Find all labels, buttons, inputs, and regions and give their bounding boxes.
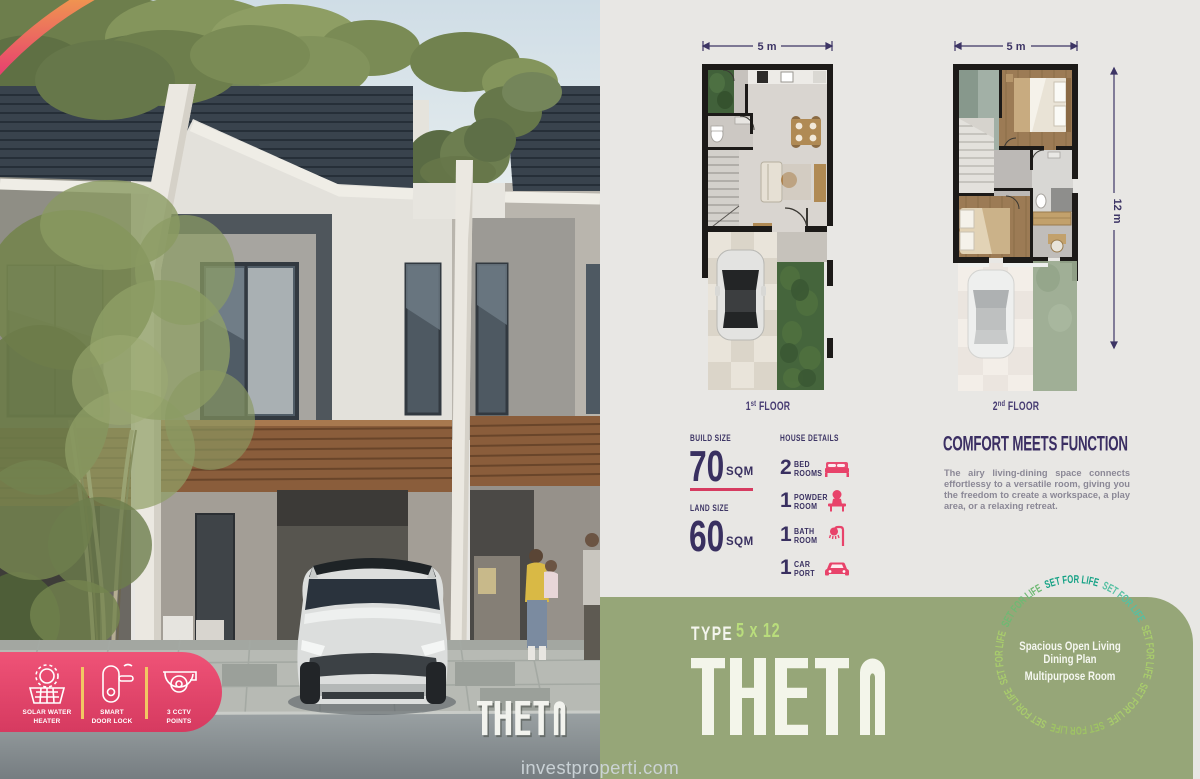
svg-text:SET FOR LIFE: SET FOR LIFE bbox=[1002, 685, 1049, 729]
svg-text:SET FOR LIFE: SET FOR LIFE bbox=[1105, 681, 1150, 728]
svg-text:SET FOR LIFE: SET FOR LIFE bbox=[1043, 574, 1100, 592]
svg-text:SET FOR LIFE: SET FOR LIFE bbox=[1049, 718, 1106, 736]
svg-text:12 m: 12 m bbox=[1111, 198, 1123, 223]
svg-text:SET FOR LIFE: SET FOR LIFE bbox=[1100, 580, 1147, 625]
svg-text:POINTS: POINTS bbox=[167, 718, 193, 725]
svg-text:SET FOR LIFE: SET FOR LIFE bbox=[1138, 624, 1155, 681]
svg-text:3 CCTV: 3 CCTV bbox=[167, 709, 191, 716]
svg-text:DOOR LOCK: DOOR LOCK bbox=[92, 718, 133, 725]
svg-text:SOLAR WATER: SOLAR WATER bbox=[23, 709, 72, 716]
svg-text:SMART: SMART bbox=[100, 709, 124, 716]
svg-text:5 m: 5 m bbox=[1007, 41, 1026, 53]
svg-text:HEATER: HEATER bbox=[34, 718, 61, 725]
svg-text:SET FOR LIFE: SET FOR LIFE bbox=[1000, 582, 1045, 629]
svg-text:5 m: 5 m bbox=[758, 41, 777, 53]
